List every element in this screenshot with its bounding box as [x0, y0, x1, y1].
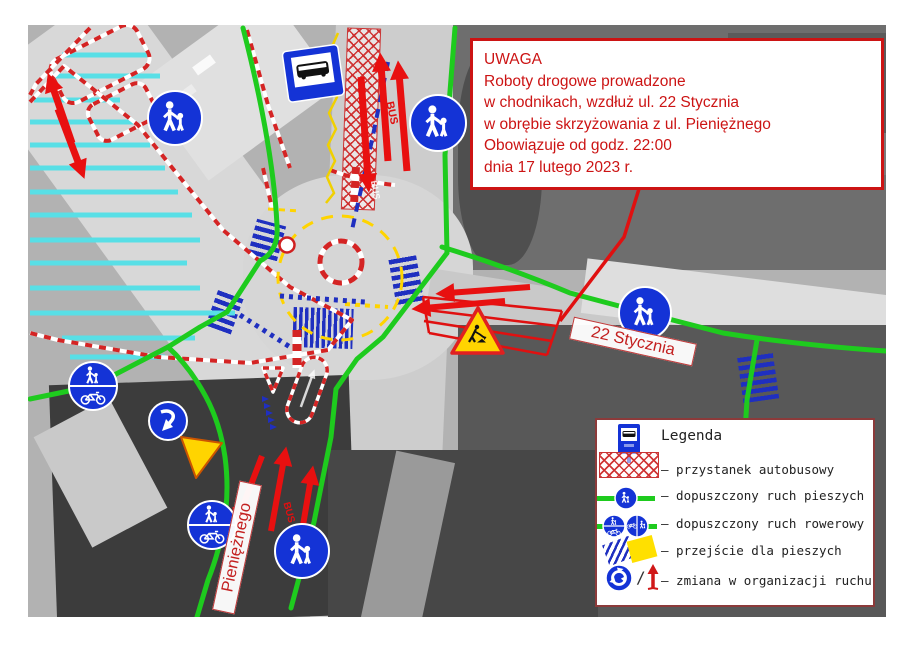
pedestrian-bicycle-sign-icon	[602, 514, 626, 538]
bus-stop-crosshatch-icon	[599, 452, 659, 478]
notice-line-3: w chodnikach, wzdłuż ul. 22 Stycznia	[484, 92, 870, 114]
sign-pedestrians-northwest	[148, 91, 202, 145]
sign-pedestrians-north	[410, 95, 466, 151]
legend-item-label: – przejście dla pieszych	[661, 543, 842, 558]
bicycle-pedestrian-sign-icon	[625, 514, 649, 538]
legend-item-label: – dopuszczony ruch pieszych	[661, 488, 864, 503]
legend-item-label: – dopuszczony ruch rowerowy	[661, 516, 864, 531]
notice-box: UWAGA Roboty drogowe prowadzone w chodni…	[470, 38, 884, 190]
yellow-patch-icon	[627, 535, 658, 563]
notice-line-6: dnia 17 lutego 2023 r.	[484, 157, 870, 179]
legend-item-label: – przystanek autobusowy	[661, 462, 834, 477]
notice-line-2: Roboty drogowe prowadzone	[484, 71, 870, 93]
give-way-triangle	[181, 437, 222, 478]
notice-line-4: w obrębie skrzyżowania z ul. Pieniężnego	[484, 114, 870, 136]
bus-stop-sign	[282, 44, 345, 102]
red-change-arrow-icon	[645, 562, 661, 590]
legend-title: Legenda	[661, 428, 722, 444]
aerial-photo: BUS BUS BUS 22 Stycznia Pieniężnego UWAG…	[28, 25, 886, 617]
sign-pedestrians-south	[275, 524, 329, 578]
roundabout-sign-icon	[605, 564, 633, 592]
traffic-change-map-page: BUS BUS BUS 22 Stycznia Pieniężnego UWAG…	[0, 0, 915, 646]
pedestrian-sign-icon	[614, 486, 638, 510]
notice-line-5: Obowiązuje od godz. 22:00	[484, 135, 870, 157]
legend-box: Legenda – przystanek autobusowy – dopusz…	[595, 418, 875, 607]
legend-item-label: – zmiana w organizacji ruchu	[661, 573, 872, 588]
sign-turn-direction	[149, 402, 187, 440]
sign-pedestrian-bicycle-west	[69, 362, 117, 410]
notice-line-1: UWAGA	[484, 49, 870, 71]
